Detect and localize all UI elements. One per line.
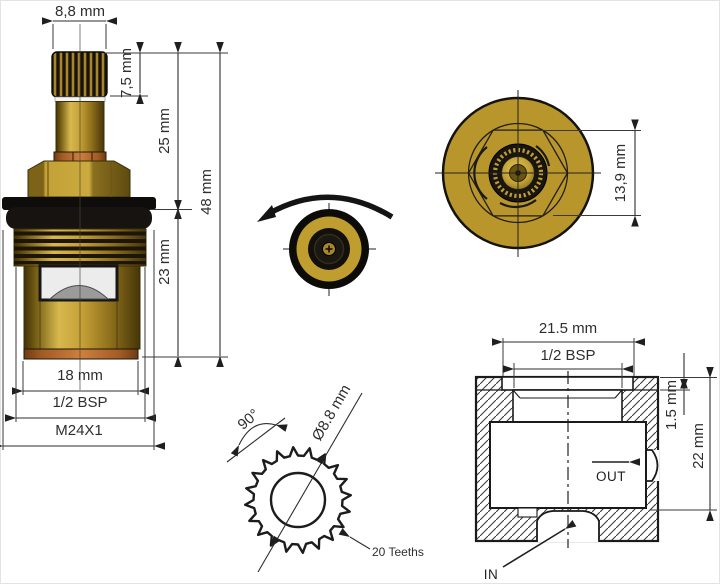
dim-angle: 90° bbox=[235, 406, 263, 434]
rotation-view bbox=[257, 197, 392, 296]
dim-spline-height: 7,5 mm bbox=[118, 48, 135, 98]
dim-housing-thread: 1/2 BSP bbox=[540, 347, 595, 364]
seat-step bbox=[518, 508, 537, 517]
hex-nut bbox=[28, 161, 130, 197]
dim-spline-diameter: Ø8.8 mm bbox=[309, 382, 355, 444]
dim-lower-height: 23 mm bbox=[156, 239, 173, 285]
drawing-svg: 8,8 mm 7,5 mm 25 mm 23 mm 48 mm 18 mm 1/… bbox=[0, 0, 720, 584]
dim-housing-width: 21.5 mm bbox=[539, 320, 597, 337]
rotation-arrowhead-icon bbox=[257, 205, 276, 222]
dim-mount-thread: M24X1 bbox=[55, 422, 103, 439]
spline-stem bbox=[52, 52, 107, 97]
dim-housing-depth: 22 mm bbox=[690, 423, 707, 469]
o-ring bbox=[6, 207, 152, 229]
dim-bsp-thread: 1/2 BSP bbox=[52, 394, 107, 411]
dim-body-diameter: 18 mm bbox=[57, 367, 103, 384]
technical-drawing-sheet: 8,8 mm 7,5 mm 25 mm 23 mm 48 mm 18 mm 1/… bbox=[0, 0, 720, 584]
dim-step-depth: 1.5 mm bbox=[663, 380, 680, 430]
dim-stem-width: 8,8 mm bbox=[55, 3, 105, 20]
housing-section-view: 21.5 mm 1/2 BSP 1.5 mm 22 mm OUT IN bbox=[476, 320, 717, 582]
label-in: IN bbox=[484, 567, 499, 582]
spline-bore bbox=[271, 473, 325, 527]
dim-across-flats: 13,9 mm bbox=[612, 144, 629, 202]
label-teeth-count: 20 Teeths bbox=[372, 545, 424, 559]
dim-upper-height: 25 mm bbox=[156, 108, 173, 154]
cartridge-top-view: 13,9 mm bbox=[435, 90, 641, 257]
spline-detail-view: 90° Ø8.8 mm 20 Teeths bbox=[227, 382, 424, 572]
base-seal bbox=[24, 349, 138, 359]
dim-total-height: 48 mm bbox=[198, 169, 215, 215]
label-out: OUT bbox=[596, 469, 626, 484]
